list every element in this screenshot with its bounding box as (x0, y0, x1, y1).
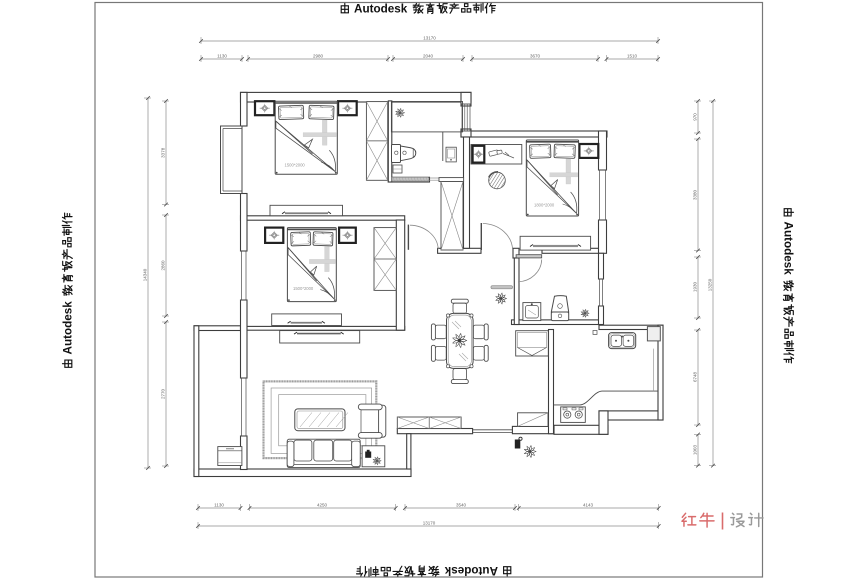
svg-text:13170: 13170 (423, 36, 436, 41)
svg-text:4143: 4143 (583, 503, 594, 508)
svg-text:13250: 13250 (708, 278, 713, 291)
svg-text:Autodesk: Autodesk (62, 301, 75, 355)
svg-text:1930: 1930 (693, 281, 698, 292)
svg-text:1130: 1130 (217, 54, 227, 59)
svg-text:Autodesk: Autodesk (781, 222, 794, 276)
svg-text:1130: 1130 (214, 503, 224, 508)
svg-text:1500*2000: 1500*2000 (293, 286, 314, 291)
svg-text:1800*2000: 1800*2000 (534, 203, 555, 208)
svg-text:3380: 3380 (693, 189, 698, 200)
svg-text:13170: 13170 (423, 521, 436, 526)
svg-text:2860: 2860 (161, 260, 166, 271)
svg-text:3378: 3378 (161, 147, 166, 158)
svg-text:2040: 2040 (423, 54, 434, 59)
svg-text:1500*2000: 1500*2000 (285, 163, 306, 168)
svg-text:6748: 6748 (693, 371, 698, 382)
svg-text:1003: 1003 (693, 444, 698, 455)
svg-text:1510: 1510 (627, 54, 638, 59)
svg-text:2770: 2770 (161, 388, 166, 399)
svg-text:2980: 2980 (313, 54, 324, 59)
svg-text:Autodesk: Autodesk (354, 3, 408, 16)
svg-text:4250: 4250 (317, 503, 328, 508)
svg-text:Autodesk: Autodesk (444, 564, 498, 577)
svg-text:3540: 3540 (456, 503, 467, 508)
svg-text:3670: 3670 (530, 54, 541, 59)
svg-text:970: 970 (693, 113, 698, 121)
svg-text:14340: 14340 (143, 268, 148, 281)
